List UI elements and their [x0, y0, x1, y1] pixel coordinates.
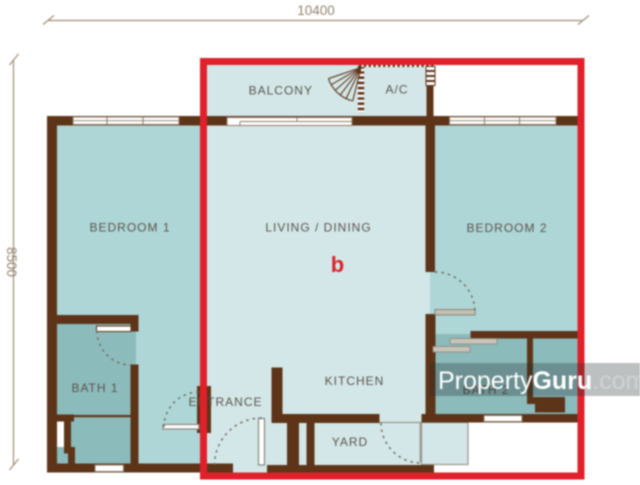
- svg-text:BALCONY: BALCONY: [249, 84, 313, 98]
- svg-text:8500: 8500: [4, 247, 19, 277]
- svg-text:ENTRANCE: ENTRANCE: [188, 395, 262, 409]
- svg-text:BATH 1: BATH 1: [71, 381, 118, 395]
- svg-text:LIVING / DINING: LIVING / DINING: [265, 221, 371, 235]
- svg-text:KITCHEN: KITCHEN: [325, 374, 385, 388]
- svg-text:YARD: YARD: [332, 435, 368, 449]
- svg-text:BEDROOM 1: BEDROOM 1: [89, 221, 170, 235]
- svg-text:A/C: A/C: [385, 83, 408, 97]
- svg-text:b: b: [331, 252, 344, 277]
- svg-text:BEDROOM 2: BEDROOM 2: [466, 221, 547, 235]
- svg-text:PropertyGuru.com.my: PropertyGuru.com.my: [438, 367, 640, 395]
- svg-text:10400: 10400: [297, 3, 335, 18]
